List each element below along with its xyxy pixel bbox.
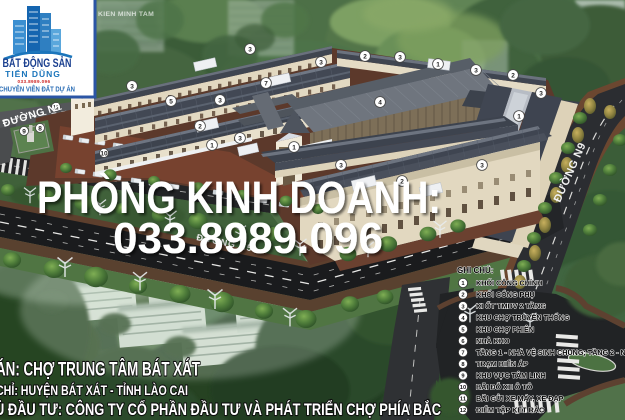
svg-text:9: 9 [22, 128, 26, 135]
svg-text:12: 12 [460, 408, 466, 414]
svg-text:ÁN: CHỢ TRUNG TÂM BÁT XÁT: ÁN: CHỢ TRUNG TÂM BÁT XÁT [0, 357, 200, 381]
svg-text:1: 1 [436, 61, 440, 68]
svg-text:2: 2 [198, 123, 202, 130]
svg-text:3: 3 [539, 90, 543, 97]
svg-text:3: 3 [130, 83, 134, 90]
svg-text:KI ỐT TMDV 2 TẦNG: KI ỐT TMDV 2 TẦNG [476, 301, 546, 311]
svg-text:3: 3 [339, 162, 343, 169]
svg-text:TIẾN DŨNG: TIẾN DŨNG [5, 69, 61, 79]
svg-text:8: 8 [38, 125, 42, 132]
svg-text:KHU CHỢ TRUYỀN THỐNG: KHU CHỢ TRUYỀN THỐNG [476, 312, 570, 322]
svg-text:3: 3 [480, 162, 484, 169]
svg-text:3: 3 [474, 67, 478, 74]
svg-text:BÃI ĐỖ XE Ô TÔ: BÃI ĐỖ XE Ô TÔ [476, 383, 533, 392]
svg-text:3: 3 [398, 54, 402, 61]
svg-text:KHỐI CỔNG PHỤ: KHỐI CỔNG PHỤ [476, 289, 535, 299]
svg-text:11: 11 [460, 397, 467, 403]
svg-text:3: 3 [319, 59, 323, 66]
svg-text:BÃI GỬI XE MÁY, XE ĐẠP: BÃI GỬI XE MÁY, XE ĐẠP [476, 394, 564, 403]
svg-text:KHU CHỢ PHIÊN: KHU CHỢ PHIÊN [476, 325, 534, 334]
svg-text:2: 2 [363, 53, 367, 60]
svg-text:TẦNG 1 - NHÀ VỆ SINH CHUNG; TẦ: TẦNG 1 - NHÀ VỆ SINH CHUNG; TẦNG 2 - NHÀ… [476, 347, 625, 357]
svg-text:2: 2 [511, 72, 515, 79]
svg-text:2: 2 [461, 293, 464, 299]
svg-text:ĐIỂM TẬP KẾT RÁC: ĐIỂM TẬP KẾT RÁC [476, 405, 544, 415]
svg-text:1: 1 [292, 144, 296, 151]
svg-text:KHU VỰC TÂM LINH: KHU VỰC TÂM LINH [476, 371, 546, 380]
svg-text:Ủ ĐẦU TƯ: CÔNG TY CỔ PHẦN ĐẦU: Ủ ĐẦU TƯ: CÔNG TY CỔ PHẦN ĐẦU TƯ VÀ PHÁT… [0, 400, 441, 419]
svg-text:033.8989.096: 033.8989.096 [18, 79, 51, 84]
svg-text:3: 3 [218, 97, 222, 104]
svg-text:7: 7 [461, 351, 464, 357]
svg-text:1: 1 [517, 113, 521, 120]
svg-text:033.8989.096: 033.8989.096 [113, 214, 383, 263]
svg-text:CHỈ: HUYỆN BÁT XÁT - TỈNH LÀO: CHỈ: HUYỆN BÁT XÁT - TỈNH LÀO CAI [0, 383, 188, 398]
svg-text:3: 3 [248, 46, 252, 53]
svg-text:KIEN MINH TAM: KIEN MINH TAM [98, 11, 154, 18]
svg-text:10: 10 [460, 385, 466, 391]
svg-text:7: 7 [264, 80, 268, 87]
svg-text:3: 3 [238, 135, 242, 142]
svg-text:5: 5 [169, 98, 173, 105]
svg-text:KHỐI CỔNG CHÍNH: KHỐI CỔNG CHÍNH [476, 278, 542, 288]
svg-text:GHI CHÚ:: GHI CHÚ: [457, 266, 493, 275]
svg-text:1: 1 [210, 142, 214, 149]
svg-text:10: 10 [100, 150, 108, 157]
svg-text:TRẠM BIẾN ÁP: TRẠM BIẾN ÁP [476, 358, 528, 368]
svg-text:NHÀ KHO: NHÀ KHO [476, 336, 510, 345]
svg-text:4: 4 [378, 99, 382, 106]
